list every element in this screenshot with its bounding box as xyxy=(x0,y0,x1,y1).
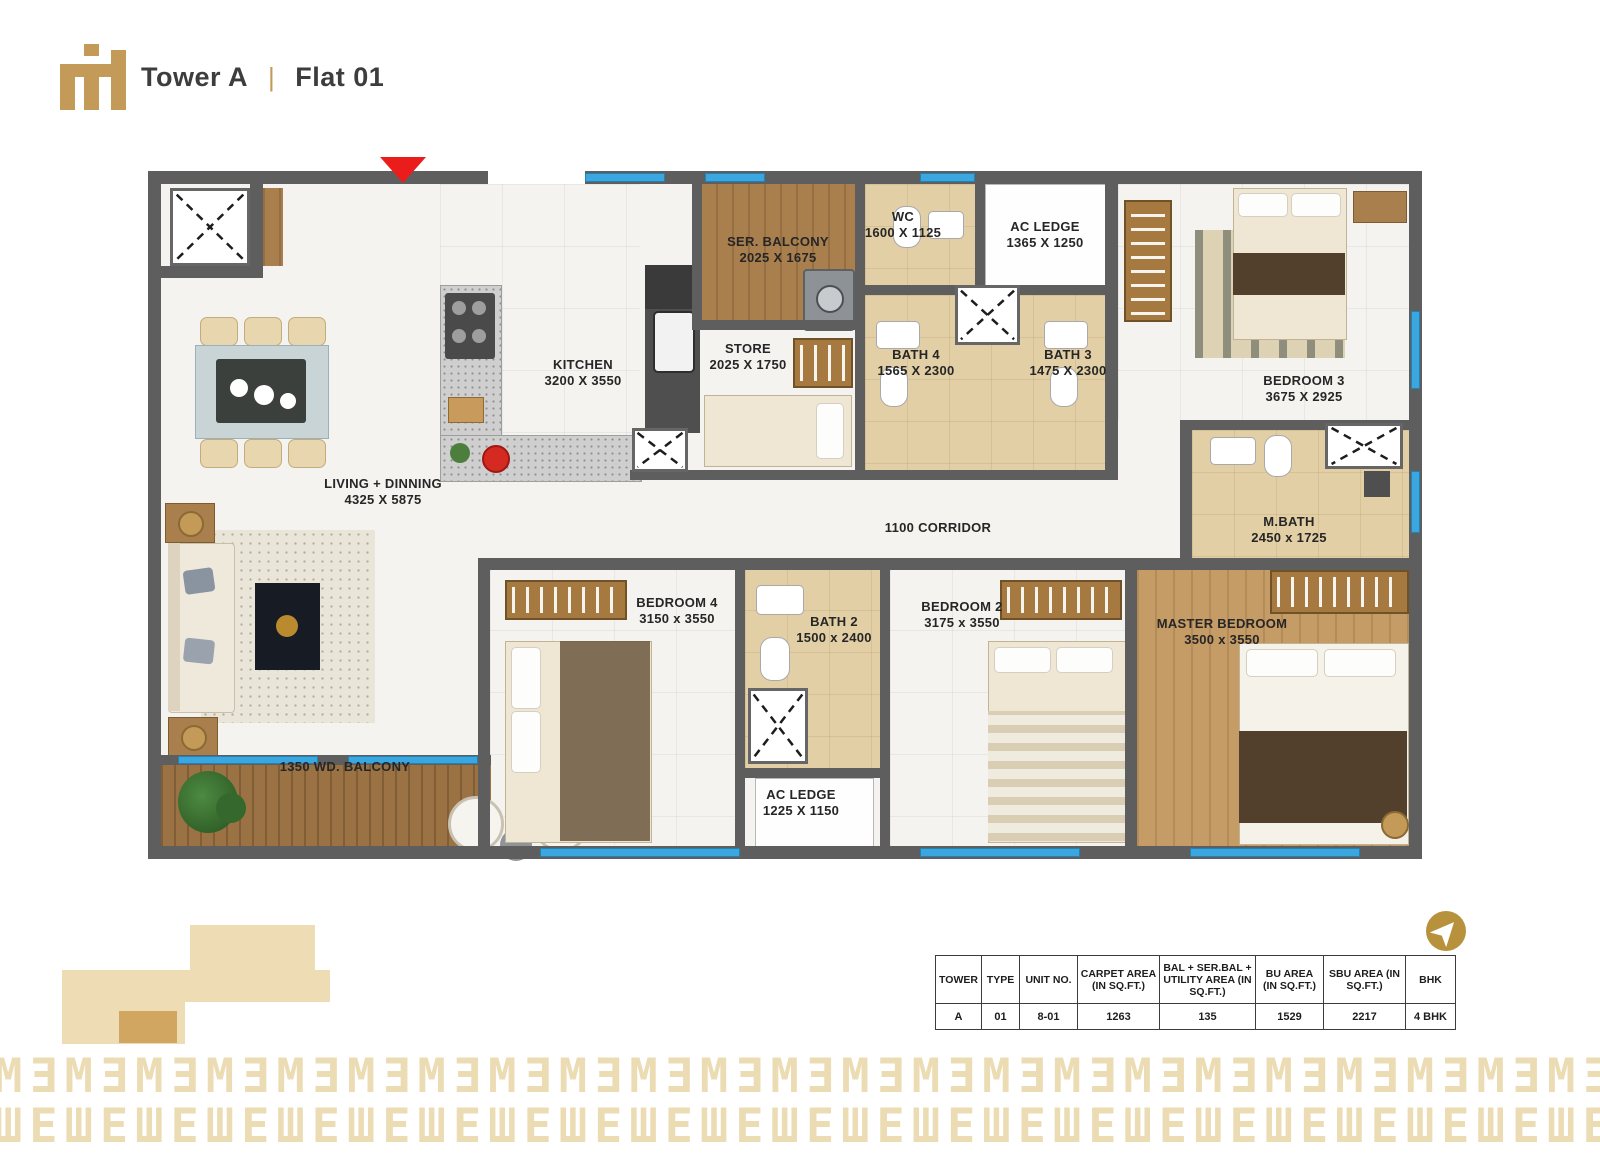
cutting-board xyxy=(448,397,484,423)
window xyxy=(920,848,1080,857)
room-label-kitchen: KITCHEN 3200 X 3550 xyxy=(544,357,621,389)
pattern-row-2: ШEШEШEШEШEШEШEШEШEШEШEШEШEШEШEШEШEШEШEШE… xyxy=(0,1102,1600,1152)
bath4-sink xyxy=(876,321,920,349)
room-dims: 3675 X 2925 xyxy=(1263,389,1344,405)
window xyxy=(585,173,665,182)
wall xyxy=(148,171,1422,184)
wall xyxy=(975,184,985,285)
pattern-row-1: MƎMƎMƎMƎMƎMƎMƎMƎMƎMƎMƎMƎMƎMƎMƎMƎMƎMƎMƎMƎ… xyxy=(0,1052,1600,1102)
window xyxy=(540,848,740,857)
room-dims: 1365 X 1250 xyxy=(1006,235,1083,251)
table-decor xyxy=(276,615,298,637)
shaft-duct xyxy=(748,688,808,764)
wall xyxy=(692,320,865,330)
room-label-ac-ledge-bottom: AC LEDGE 1225 X 1150 xyxy=(763,787,839,819)
dining-chair xyxy=(200,439,238,468)
col-type: TYPE xyxy=(982,956,1020,1004)
plate xyxy=(280,393,296,409)
lamp xyxy=(181,725,207,751)
val-tower: A xyxy=(936,1004,982,1030)
bedroom3-nightstand xyxy=(1353,191,1407,223)
room-name: MASTER BEDROOM xyxy=(1157,616,1288,632)
wall xyxy=(745,768,880,778)
col-carpet: CARPET AREA (IN SQ.FT.) xyxy=(1078,956,1160,1004)
sofa-cushion xyxy=(183,637,215,664)
plate xyxy=(230,379,248,397)
key-plan-highlight xyxy=(119,1011,177,1043)
room-dims: 2025 X 1750 xyxy=(709,357,786,373)
burner xyxy=(452,301,466,315)
key-plan-block xyxy=(62,970,330,1002)
mbath-toilet xyxy=(1264,435,1292,477)
kitchen-sink xyxy=(653,311,695,373)
pillow xyxy=(1238,193,1288,217)
pillow xyxy=(994,647,1051,673)
room-name: BEDROOM 2 xyxy=(921,599,1002,615)
window xyxy=(920,173,975,182)
sofa-back xyxy=(168,543,180,711)
room-label-master-bedroom: MASTER BEDROOM 3500 x 3550 xyxy=(1157,616,1288,648)
bath3-sink xyxy=(1044,321,1088,349)
wall xyxy=(1105,171,1118,480)
room-name: 1350 WD. BALCONY xyxy=(280,759,411,775)
mbath-shower xyxy=(1364,471,1390,497)
plant-leaf xyxy=(216,793,246,823)
col-sbu: SBU AREA (IN SQ.FT.) xyxy=(1324,956,1406,1004)
table-header-row: TOWER TYPE UNIT NO. CARPET AREA (IN SQ.F… xyxy=(936,956,1456,1004)
dining-chair xyxy=(288,317,326,346)
washing-machine-door xyxy=(816,285,844,313)
bath2-sink xyxy=(756,585,804,615)
bedroom4-wardrobe xyxy=(505,580,627,620)
title-divider: | xyxy=(268,62,275,93)
room-name: M.BATH xyxy=(1251,514,1327,530)
room-name: 1100 CORRIDOR xyxy=(885,520,992,536)
dining-chair xyxy=(200,317,238,346)
brand-logo-icon xyxy=(60,42,126,112)
wall xyxy=(1180,420,1192,568)
room-name: KITCHEN xyxy=(544,357,621,373)
room-label-bath3: BATH 3 1475 X 2300 xyxy=(1029,347,1106,379)
val-bal: 135 xyxy=(1160,1004,1256,1030)
wall xyxy=(880,568,890,859)
vegetables xyxy=(450,443,470,463)
val-sbu: 2217 xyxy=(1324,1004,1406,1030)
sofa-cushion xyxy=(182,567,215,595)
val-unit: 8-01 xyxy=(1020,1004,1078,1030)
bedroom4-blanket xyxy=(560,641,650,841)
store-pillow xyxy=(816,403,844,459)
bath2-toilet xyxy=(760,637,790,681)
floor-entry-wood xyxy=(263,188,283,266)
room-label-ser-balcony: SER. BALCONY 2025 X 1675 xyxy=(727,234,829,266)
room-dims: 1225 X 1150 xyxy=(763,803,839,819)
floor-plan: SER. BALCONY 2025 X 1675 WC 1600 X 1125 … xyxy=(148,171,1422,859)
shaft-duct xyxy=(632,428,688,472)
wall xyxy=(478,558,1422,570)
room-name: STORE xyxy=(709,341,786,357)
room-label-ac-ledge-top: AC LEDGE 1365 X 1250 xyxy=(1006,219,1083,251)
page: { "header": { "tower": "Tower A", "divid… xyxy=(0,0,1600,1156)
room-name: BATH 2 xyxy=(796,614,872,630)
bedroom3-blanket xyxy=(1233,253,1345,295)
tower-label: Tower A xyxy=(141,62,248,93)
wall xyxy=(630,470,1110,480)
room-label-living-dining: LIVING + DINNING 4325 X 5875 xyxy=(324,476,442,508)
val-bhk: 4 BHK xyxy=(1406,1004,1456,1030)
burner xyxy=(452,329,466,343)
room-name: BATH 3 xyxy=(1029,347,1106,363)
burner xyxy=(472,301,486,315)
room-label-bedroom3: BEDROOM 3 3675 X 2925 xyxy=(1263,373,1344,405)
wall xyxy=(692,184,702,330)
col-bal: BAL + SER.BAL + UTILITY AREA (IN SQ.FT.) xyxy=(1160,956,1256,1004)
bedroom2-blanket xyxy=(988,711,1128,841)
room-name: LIVING + DINNING xyxy=(324,476,442,492)
burner xyxy=(472,329,486,343)
dining-chair xyxy=(244,317,282,346)
room-dims: 3150 x 3550 xyxy=(636,611,717,627)
room-dims: 1500 x 2400 xyxy=(796,630,872,646)
pillow xyxy=(1056,647,1113,673)
col-tower: TOWER xyxy=(936,956,982,1004)
room-dims: 1600 X 1125 xyxy=(865,225,941,241)
pillow xyxy=(1246,649,1318,677)
pillow xyxy=(511,647,541,709)
shoe-rack xyxy=(793,338,853,388)
room-dims: 1475 X 2300 xyxy=(1029,363,1106,379)
room-label-mbath: M.BATH 2450 x 1725 xyxy=(1251,514,1327,546)
balcony-chair xyxy=(448,796,504,852)
val-type: 01 xyxy=(982,1004,1020,1030)
dining-chair xyxy=(288,439,326,468)
col-bu: BU AREA (IN SQ.FT.) xyxy=(1256,956,1324,1004)
room-label-wc: WC 1600 X 1125 xyxy=(865,209,941,241)
val-bu: 1529 xyxy=(1256,1004,1324,1030)
room-label-corridor: 1100 CORRIDOR xyxy=(885,520,992,536)
room-name: AC LEDGE xyxy=(763,787,839,803)
area-table: TOWER TYPE UNIT NO. CARPET AREA (IN SQ.F… xyxy=(935,955,1456,1030)
room-dims: 1565 X 2300 xyxy=(877,363,954,379)
wall xyxy=(478,568,490,859)
room-label-bedroom4: BEDROOM 4 3150 x 3550 xyxy=(636,595,717,627)
entrance-opening xyxy=(488,171,585,184)
room-dims: 3500 x 3550 xyxy=(1157,632,1288,648)
entrance-marker-icon xyxy=(380,157,426,183)
room-label-bath4: BATH 4 1565 X 2300 xyxy=(877,347,954,379)
pillow xyxy=(1291,193,1341,217)
room-name: BEDROOM 4 xyxy=(636,595,717,611)
master-blanket xyxy=(1239,731,1407,823)
room-name: SER. BALCONY xyxy=(727,234,829,250)
room-name: BATH 4 xyxy=(877,347,954,363)
wall xyxy=(1125,568,1137,859)
lamp xyxy=(178,511,204,537)
room-label-store: STORE 2025 X 1750 xyxy=(709,341,786,373)
shaft-duct xyxy=(170,188,250,266)
cooking-pot xyxy=(482,445,510,473)
window xyxy=(1190,848,1360,857)
dining-chair xyxy=(244,439,282,468)
master-lamp xyxy=(1381,811,1409,839)
mbath-sink xyxy=(1210,437,1256,465)
room-dims: 2450 x 1725 xyxy=(1251,530,1327,546)
window xyxy=(1411,471,1420,533)
wall xyxy=(250,171,263,278)
room-label-bath2: BATH 2 1500 x 2400 xyxy=(796,614,872,646)
room-dims: 4325 X 5875 xyxy=(324,492,442,508)
kitchen-counter xyxy=(440,435,642,482)
room-dims: 2025 X 1675 xyxy=(727,250,829,266)
room-dims: 3175 x 3550 xyxy=(921,615,1002,631)
room-name: WC xyxy=(865,209,941,225)
north-arrow-icon xyxy=(1426,911,1466,951)
table-data-row: A 01 8-01 1263 135 1529 2217 4 BHK xyxy=(936,1004,1456,1030)
room-dims: 3200 X 3550 xyxy=(544,373,621,389)
bedroom2-wardrobe xyxy=(1000,580,1122,620)
room-label-wd-balcony: 1350 WD. BALCONY xyxy=(280,759,411,775)
room-name: BEDROOM 3 xyxy=(1263,373,1344,389)
room-name: AC LEDGE xyxy=(1006,219,1083,235)
shaft-duct xyxy=(955,285,1020,345)
master-wardrobe xyxy=(1270,570,1409,614)
window xyxy=(705,173,765,182)
plate xyxy=(254,385,274,405)
shaft-duct xyxy=(1325,423,1403,469)
room-label-bedroom2: BEDROOM 2 3175 x 3550 xyxy=(921,599,1002,631)
pillow xyxy=(1324,649,1396,677)
wall xyxy=(855,184,865,480)
col-unit: UNIT NO. xyxy=(1020,956,1078,1004)
pillow xyxy=(511,711,541,773)
page-title: Tower A | Flat 01 xyxy=(141,62,384,93)
col-bhk: BHK xyxy=(1406,956,1456,1004)
val-carpet: 1263 xyxy=(1078,1004,1160,1030)
flat-label: Flat 01 xyxy=(295,62,384,93)
window xyxy=(1411,311,1420,389)
bedroom3-wardrobe xyxy=(1124,200,1172,322)
wall xyxy=(735,568,745,859)
north-arrow-pointer xyxy=(1430,915,1462,948)
